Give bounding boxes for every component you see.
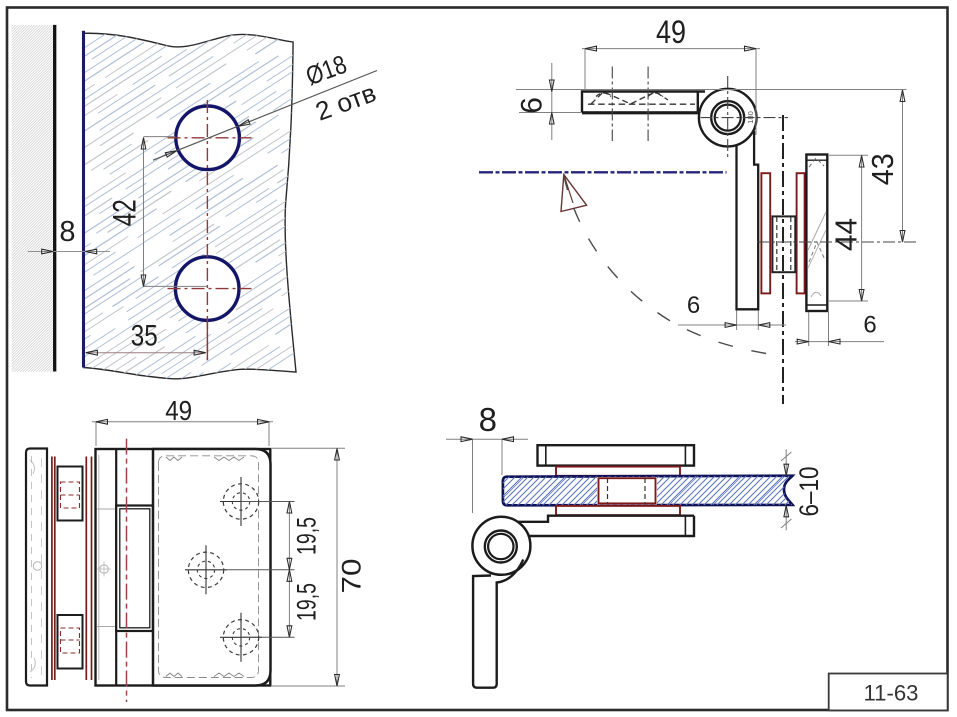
svg-text:19,5: 19,5	[291, 517, 321, 555]
svg-text:43: 43	[865, 153, 900, 185]
svg-text:35: 35	[131, 320, 158, 353]
svg-text:6: 6	[687, 292, 700, 319]
svg-text:49: 49	[165, 395, 192, 426]
svg-text:8: 8	[59, 216, 75, 248]
svg-text:11-63: 11-63	[864, 681, 919, 706]
svg-text:8: 8	[479, 401, 497, 438]
svg-text:6–10: 6–10	[794, 467, 824, 517]
svg-text:6: 6	[515, 97, 548, 114]
svg-text:180: 180	[746, 111, 755, 124]
svg-text:49: 49	[656, 14, 686, 50]
svg-text:42: 42	[107, 199, 143, 226]
svg-text:44: 44	[828, 218, 863, 251]
svg-text:19,5: 19,5	[291, 583, 321, 621]
svg-text:70: 70	[337, 559, 367, 594]
svg-text:6: 6	[863, 312, 876, 339]
